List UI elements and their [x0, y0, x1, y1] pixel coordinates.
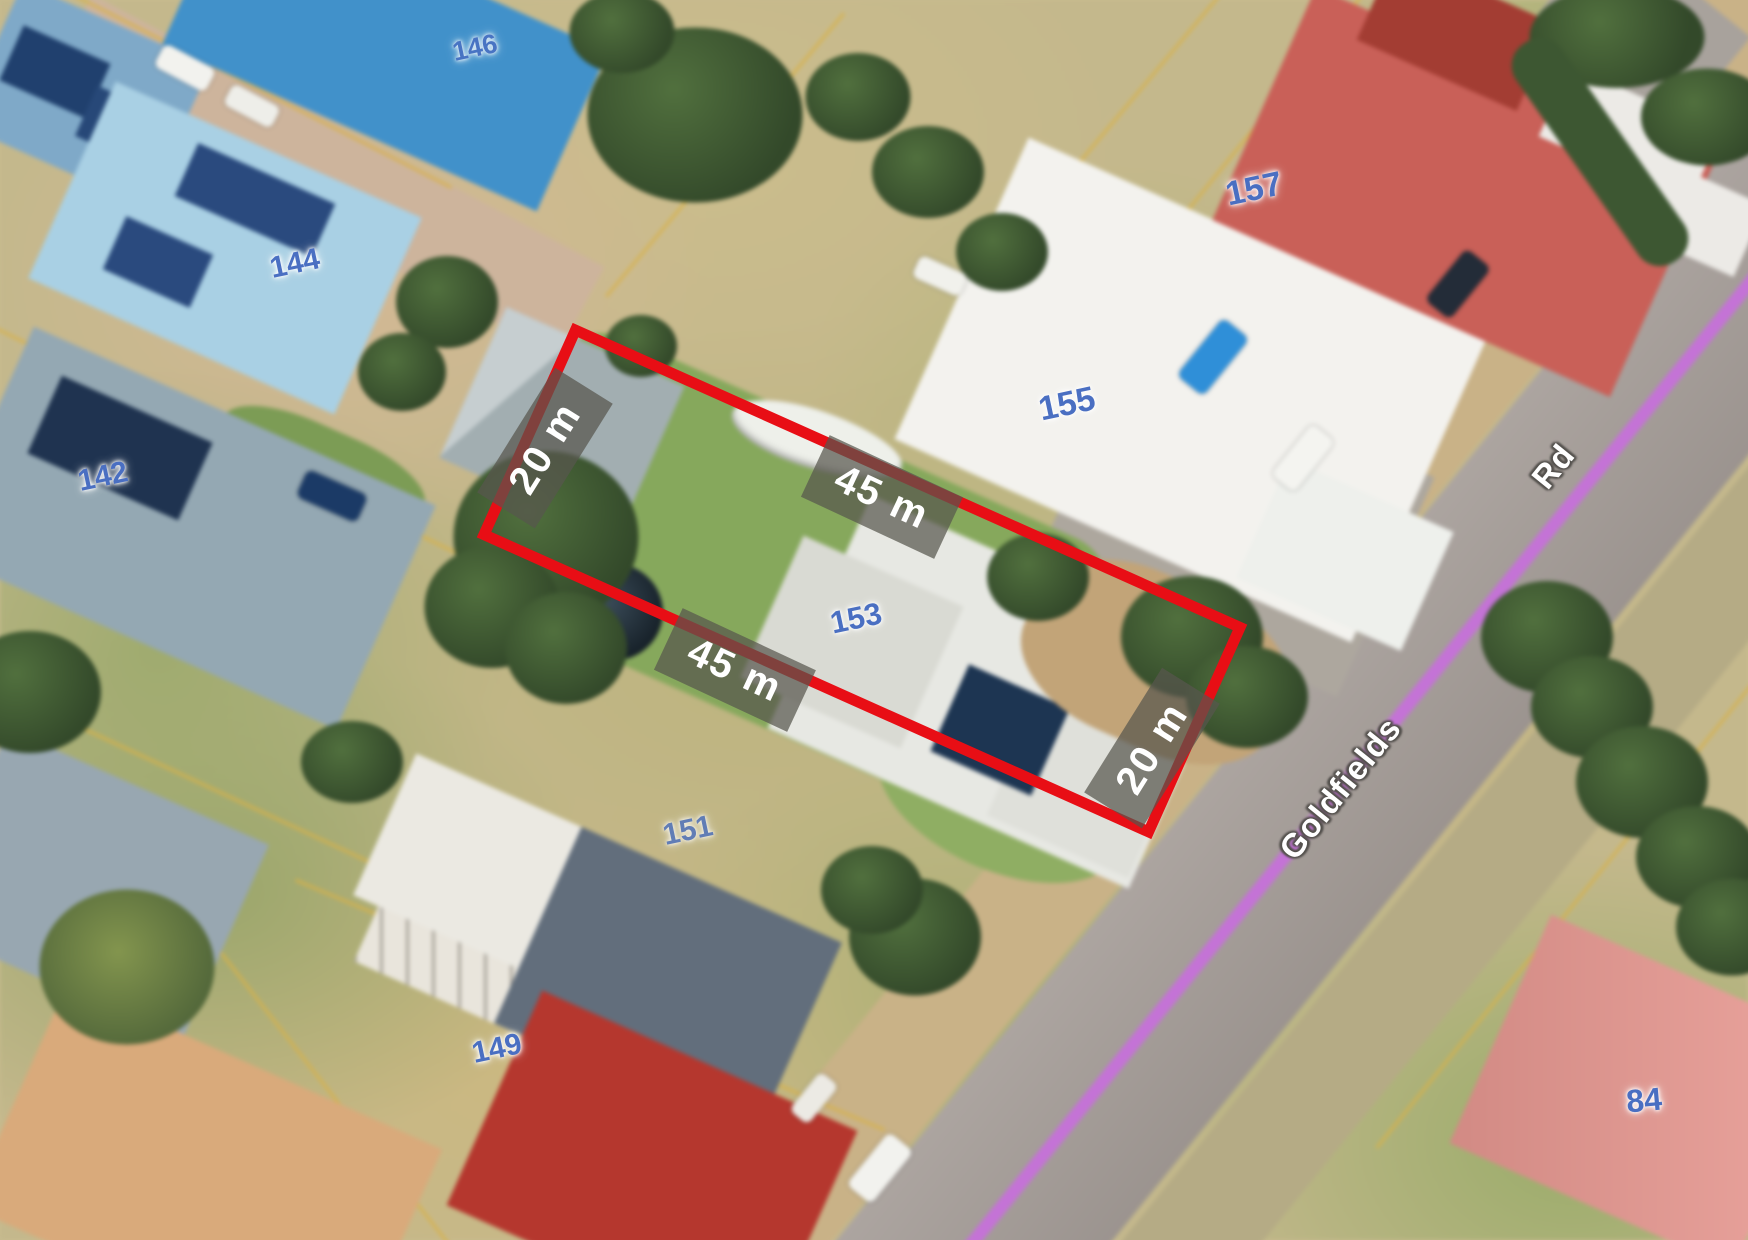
aerial-map: 20 m 45 m 45 m 20 m 146 144 142 151 149 …	[0, 0, 1748, 1240]
house-number-84: 84	[1625, 1083, 1663, 1118]
annotation-layer: 20 m 45 m 45 m 20 m 146 144 142 151 149 …	[0, 0, 1748, 1240]
house-number-157: 157	[1223, 166, 1286, 211]
road-name-label: Goldfields	[1273, 711, 1406, 865]
house-number-155: 155	[1036, 381, 1099, 426]
house-number-151: 151	[660, 811, 715, 851]
road-suffix-label: Rd	[1526, 438, 1581, 495]
house-number-149: 149	[469, 1029, 524, 1069]
house-number-144: 144	[267, 244, 322, 284]
house-number-142: 142	[75, 457, 130, 497]
house-number-146: 146	[450, 30, 500, 66]
